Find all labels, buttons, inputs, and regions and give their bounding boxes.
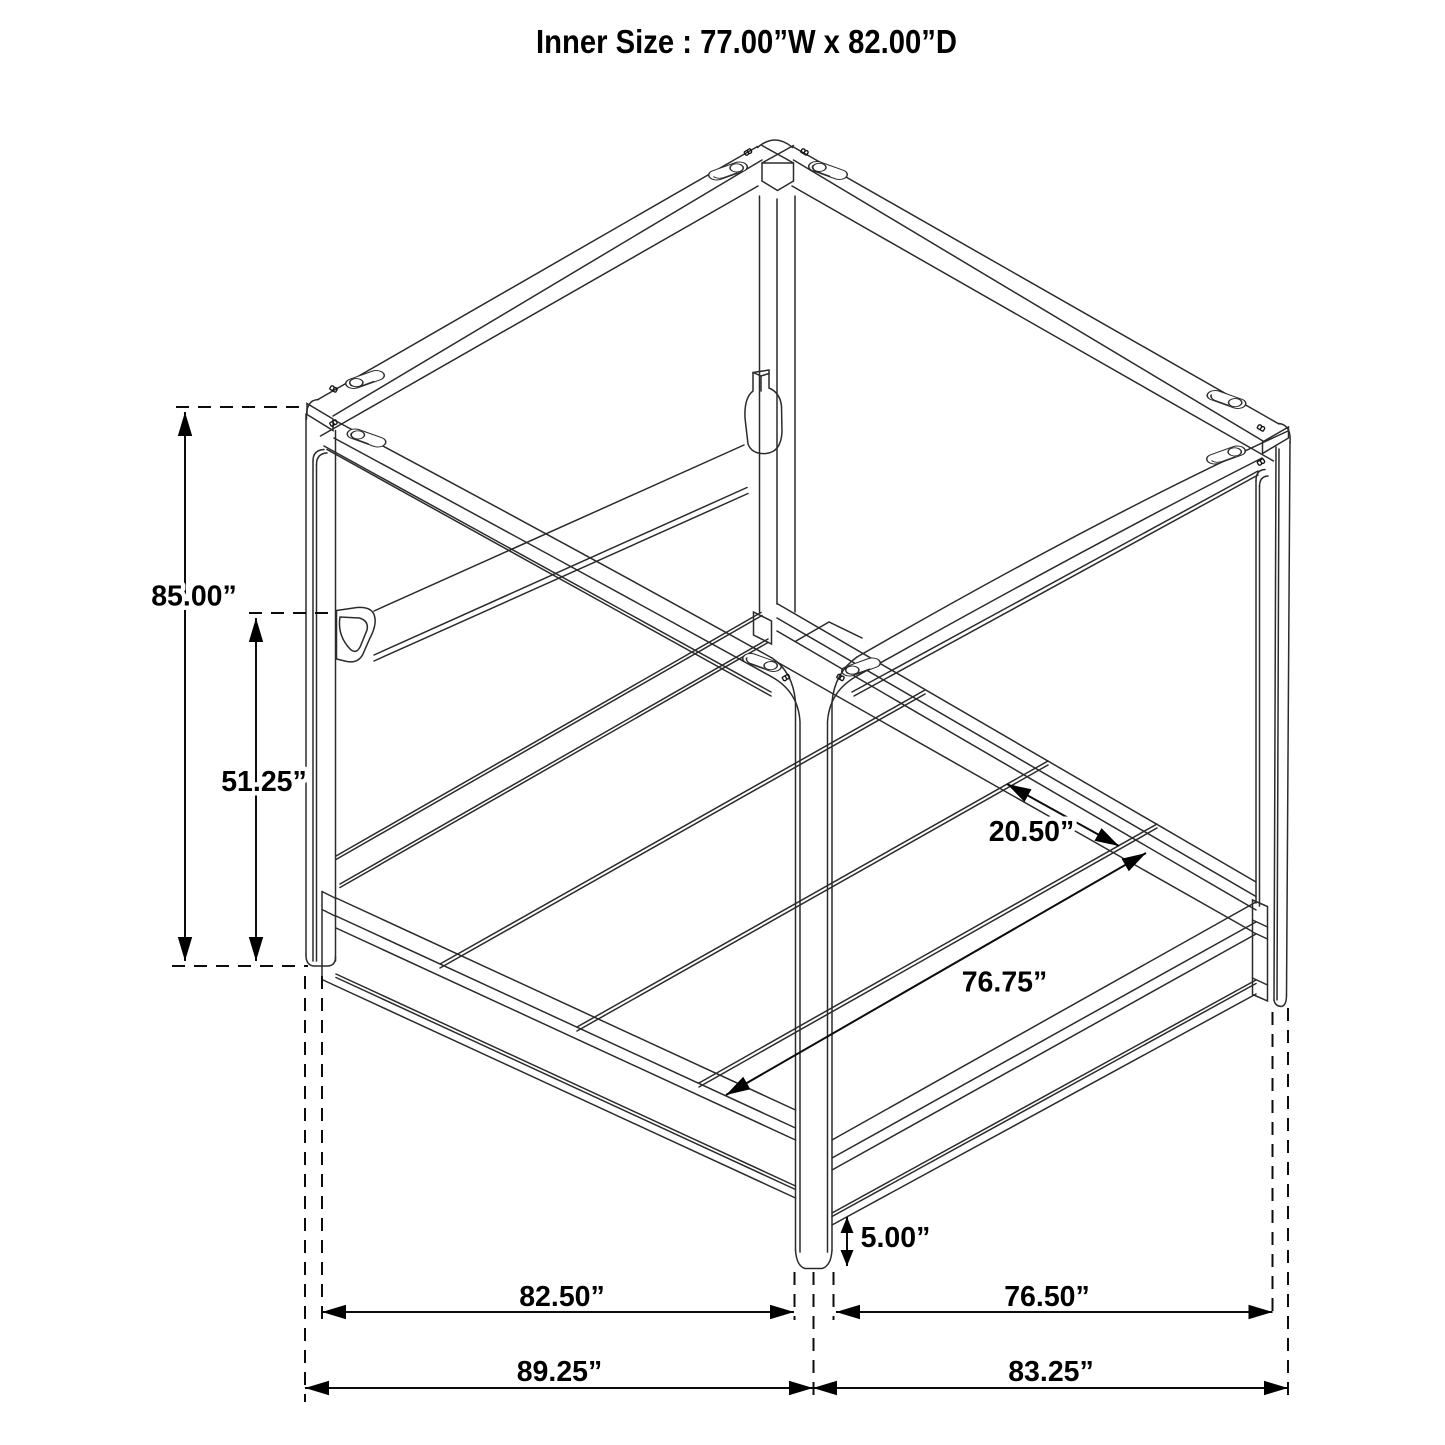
svg-text:Inner Size : 77.00”W x 82.00”D: Inner Size : 77.00”W x 82.00”D — [536, 24, 957, 61]
svg-text:89.25”: 89.25” — [517, 1356, 603, 1388]
svg-text:20.50”: 20.50” — [989, 816, 1075, 848]
svg-text:5.00”: 5.00” — [861, 1222, 931, 1254]
svg-text:51.25”: 51.25” — [221, 766, 307, 798]
svg-text:82.50”: 82.50” — [519, 1281, 605, 1313]
svg-text:85.00”: 85.00” — [151, 581, 237, 613]
svg-text:83.25”: 83.25” — [1008, 1356, 1094, 1388]
svg-text:76.50”: 76.50” — [1004, 1281, 1090, 1313]
svg-text:76.75”: 76.75” — [962, 967, 1048, 999]
